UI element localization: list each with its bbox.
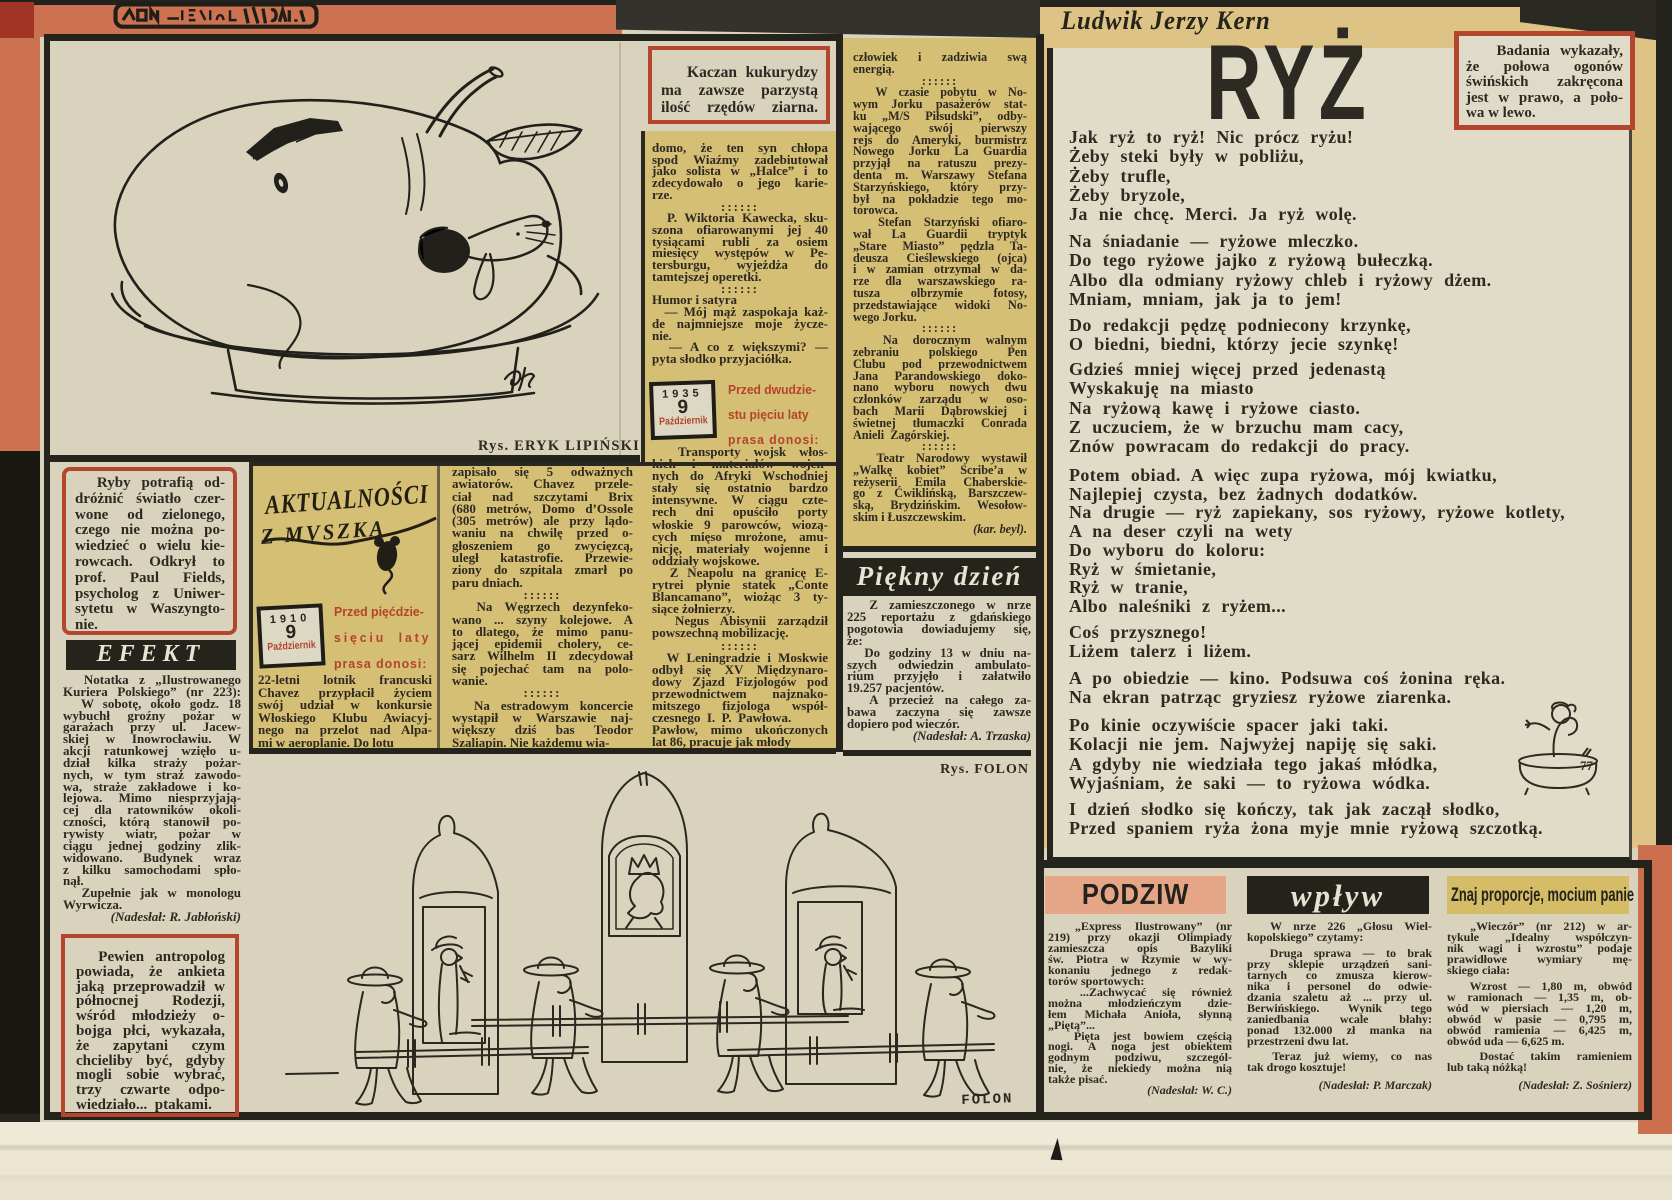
svg-text:77: 77 (1580, 758, 1594, 773)
svg-text:FOLON: FOLON (961, 1091, 1014, 1109)
